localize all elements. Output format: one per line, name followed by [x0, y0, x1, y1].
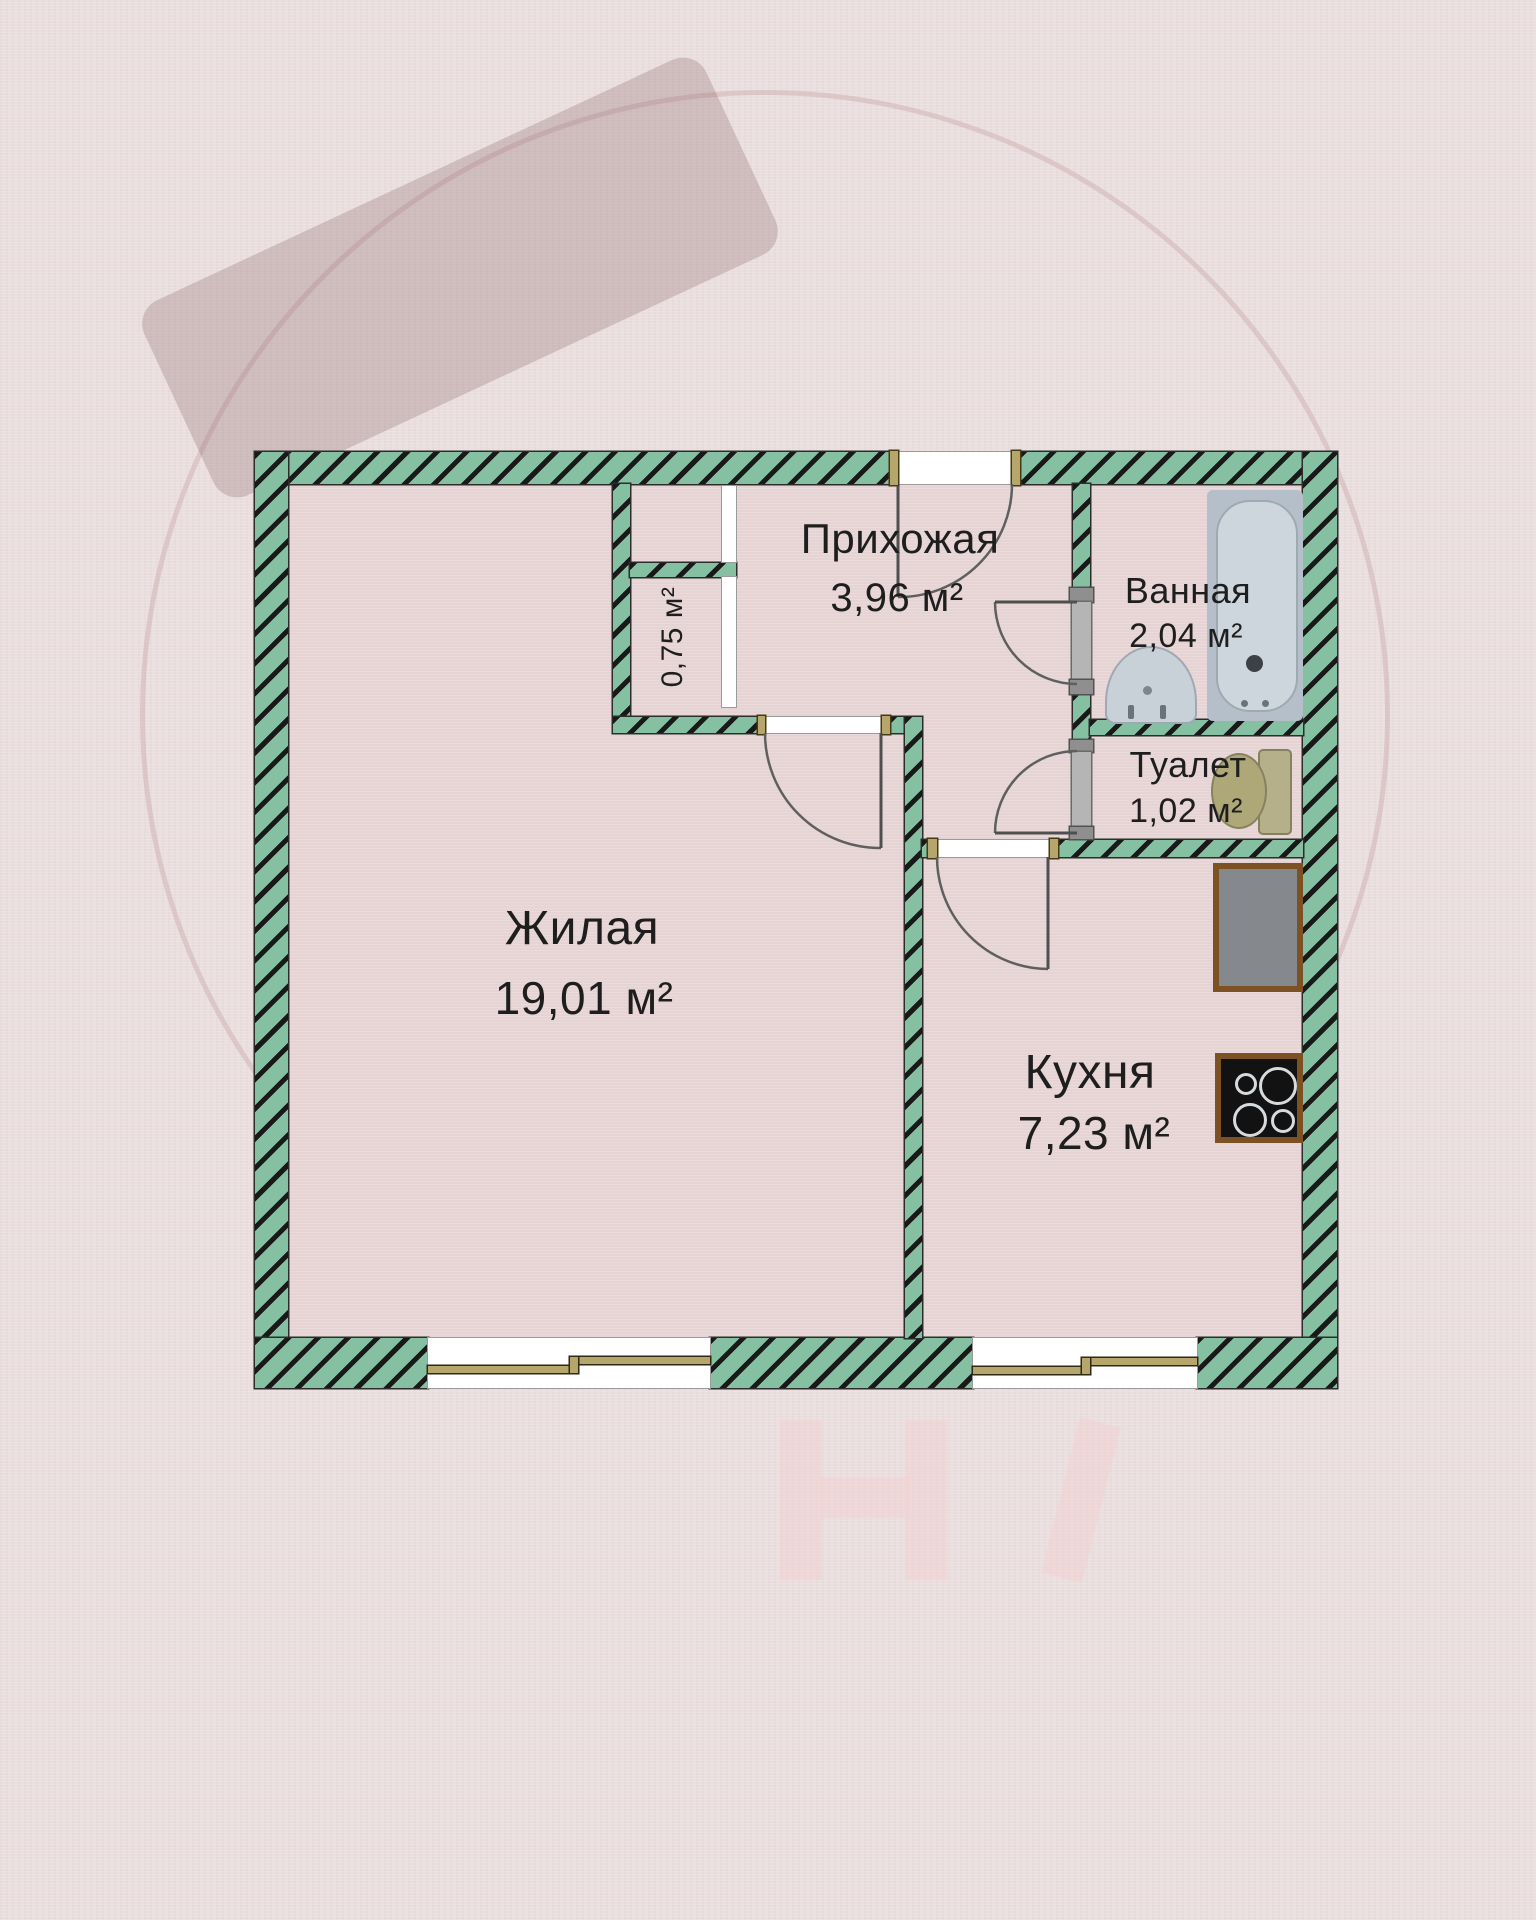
- room-label-living: Жилая: [382, 901, 782, 956]
- watermark-mark: [780, 1420, 822, 1580]
- wall-bottom-right: [1197, 1338, 1337, 1388]
- sink-tap-icon: [1160, 705, 1166, 719]
- room-area-bathroom: 2,04 м²: [1036, 617, 1336, 656]
- room-label-toilet: Туалет: [1038, 744, 1338, 786]
- living-door-jamb: [882, 716, 890, 734]
- room-area-hallway: 3,96 м²: [697, 576, 1097, 621]
- watermark-mark: [905, 1420, 947, 1580]
- entrance-door-jamb: [1012, 451, 1020, 485]
- wall-living-door-left: [613, 717, 758, 733]
- room-label-hallway: Прихожая: [700, 515, 1100, 563]
- wall-bottom-left: [255, 1338, 428, 1388]
- bath-door-frame-cap: [1070, 680, 1093, 694]
- room-area-closet: 0,75 м²: [657, 557, 689, 717]
- living-window-glazing: [570, 1357, 710, 1364]
- bathtub-tap-icon: [1241, 700, 1248, 707]
- room-label-kitchen: Кухня: [890, 1045, 1290, 1100]
- room-area-living: 19,01 м²: [384, 971, 784, 1025]
- kitchen-window-glazing-step: [1082, 1358, 1090, 1374]
- watermark-mark: [820, 1478, 910, 1518]
- wall-top-right: [1020, 452, 1337, 484]
- kitchen-door-opening: [937, 840, 1050, 857]
- sink-drain-icon: [1143, 686, 1152, 695]
- bathtub-tap-icon: [1262, 700, 1269, 707]
- entrance-door-jamb: [890, 451, 898, 485]
- living-door-jamb: [758, 716, 765, 734]
- kitchen-door-jamb: [1050, 839, 1058, 858]
- wall-top-left: [255, 452, 890, 484]
- sink-tap-icon: [1128, 705, 1134, 719]
- wall-left: [255, 452, 288, 1388]
- bathtub-drain-icon: [1246, 655, 1263, 672]
- kitchen-door-jamb: [928, 839, 937, 858]
- living-door-opening: [765, 717, 882, 733]
- living-window-glazing: [428, 1366, 578, 1373]
- wall-bottom-center: [710, 1338, 973, 1388]
- entrance-door-opening: [898, 452, 1012, 484]
- watermark-mark: [1041, 1417, 1120, 1582]
- wall-toilet-bottom: [1058, 840, 1303, 857]
- kitchen-window-glazing: [973, 1367, 1085, 1374]
- room-label-bathroom: Ванная: [1038, 570, 1338, 612]
- wall-closet-left: [613, 484, 630, 733]
- room-area-toilet: 1,02 м²: [1036, 792, 1336, 831]
- wall-living-kitchen-divider: [905, 717, 922, 1338]
- living-window-glazing-step: [570, 1357, 578, 1373]
- kitchen-window-glazing: [1082, 1358, 1197, 1365]
- room-area-kitchen: 7,23 м²: [894, 1106, 1294, 1160]
- wall-hall-bath-divider-mid: [1073, 694, 1090, 740]
- kitchen-counter-icon: [1213, 863, 1303, 992]
